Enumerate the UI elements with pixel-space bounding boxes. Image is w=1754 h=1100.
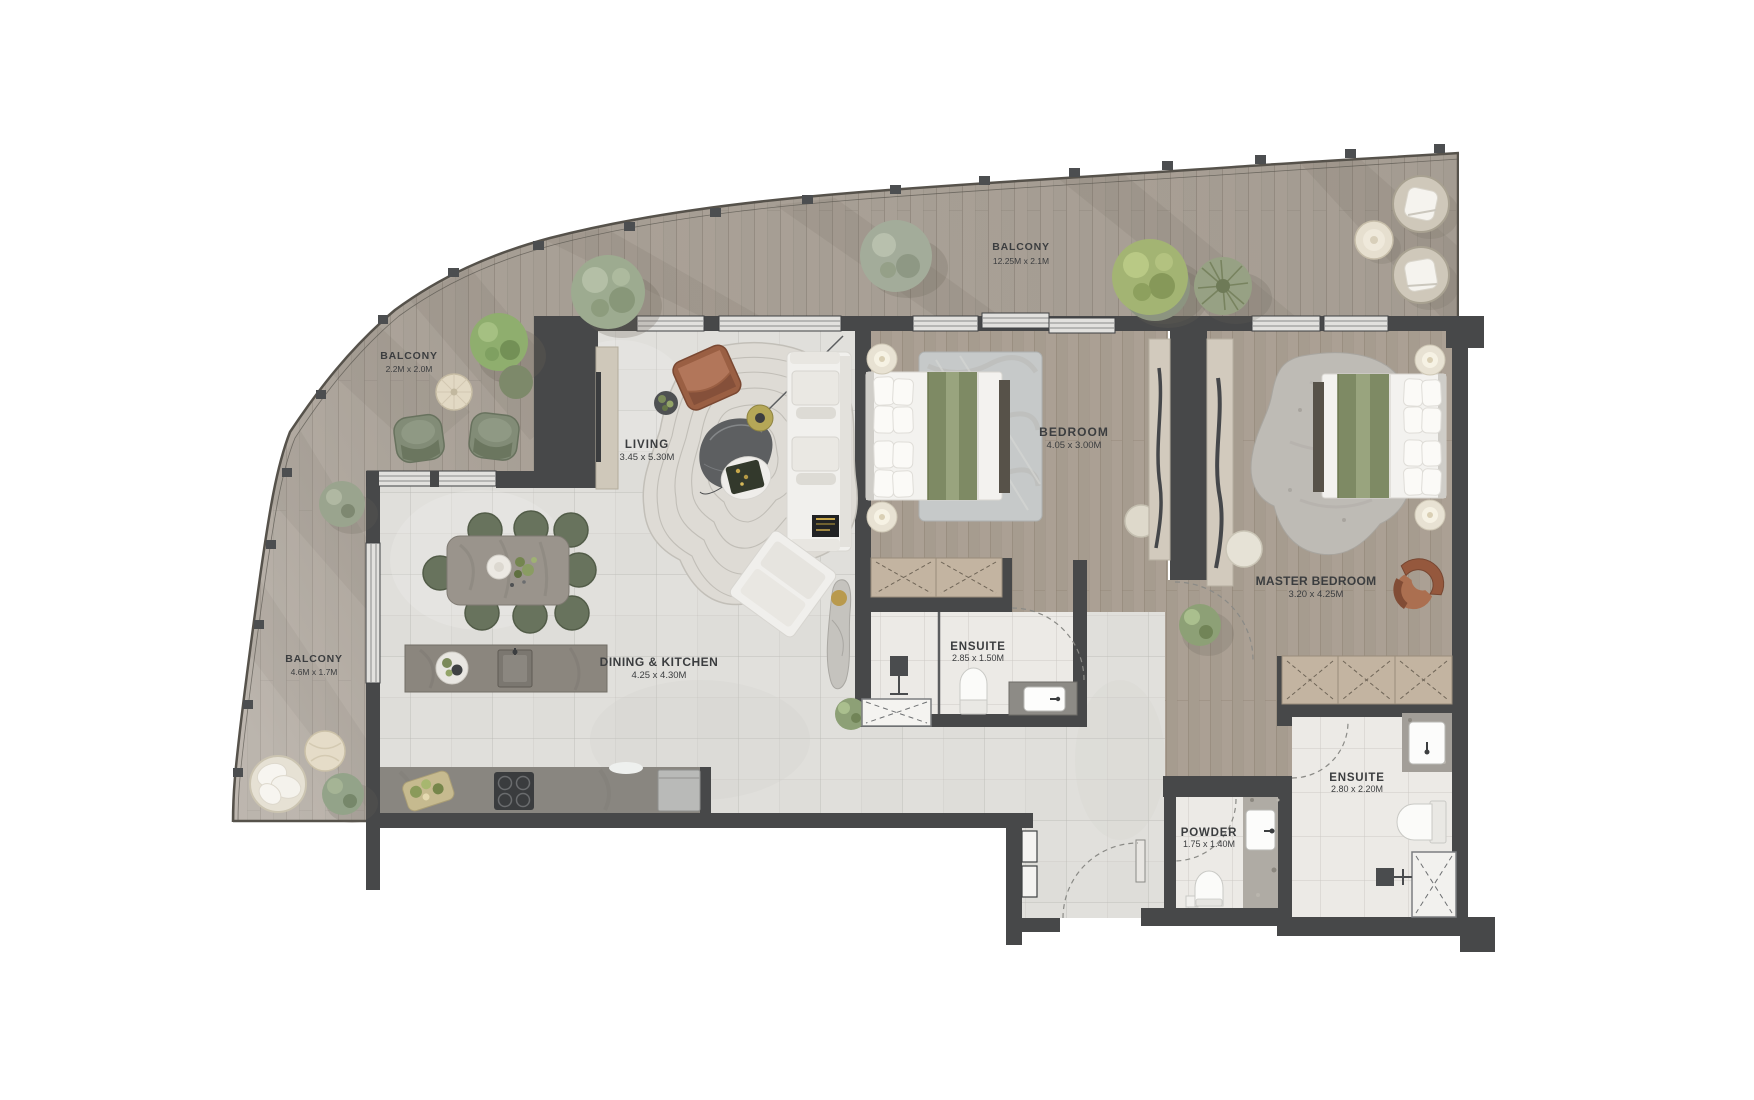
svg-text:ENSUITE: ENSUITE [1329, 772, 1384, 784]
svg-text:4.05 x 3.00M: 4.05 x 3.00M [1047, 440, 1102, 451]
svg-text:BEDROOM: BEDROOM [1039, 425, 1109, 439]
svg-text:BALCONY: BALCONY [285, 653, 343, 665]
svg-text:ENSUITE: ENSUITE [950, 641, 1005, 653]
svg-text:2.85 x 1.50M: 2.85 x 1.50M [952, 653, 1004, 663]
svg-text:MASTER BEDROOM: MASTER BEDROOM [1256, 574, 1377, 588]
svg-text:LIVING: LIVING [625, 439, 669, 451]
svg-text:4.25 x 4.30M: 4.25 x 4.30M [632, 670, 687, 681]
svg-text:3.20 x 4.25M: 3.20 x 4.25M [1289, 589, 1344, 600]
svg-text:POWDER: POWDER [1181, 827, 1238, 839]
svg-text:2.80 x 2.20M: 2.80 x 2.20M [1331, 784, 1383, 794]
svg-text:3.45 x 5.30M: 3.45 x 5.30M [620, 452, 675, 463]
svg-text:1.75 x 1.40M: 1.75 x 1.40M [1183, 839, 1235, 849]
svg-text:BALCONY: BALCONY [992, 241, 1050, 253]
svg-text:4.6M x 1.7M: 4.6M x 1.7M [291, 667, 338, 677]
svg-text:DINING & KITCHEN: DINING & KITCHEN [600, 655, 719, 669]
svg-text:12.25M x 2.1M: 12.25M x 2.1M [993, 256, 1049, 266]
svg-text:BALCONY: BALCONY [380, 350, 438, 362]
svg-text:2.2M x 2.0M: 2.2M x 2.0M [386, 364, 433, 374]
